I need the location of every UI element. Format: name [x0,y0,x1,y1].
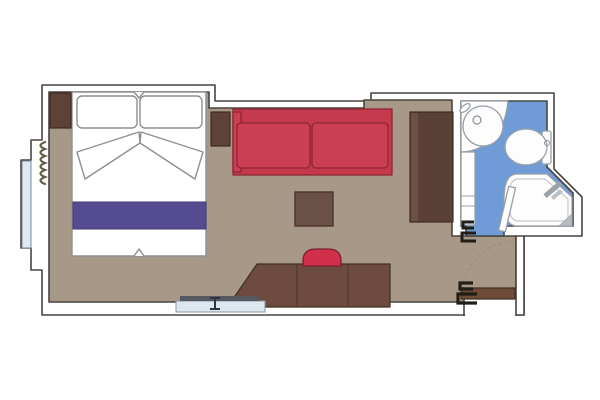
nightstand-left [50,93,71,128]
shelf-unit [461,152,475,225]
stool [303,249,341,266]
coffee-table [295,192,333,226]
nightstand-right [211,112,230,146]
pillow-right [140,96,202,128]
sofa [233,109,392,175]
toilet [505,129,551,165]
balcony-window [22,161,31,248]
pillow-left [77,96,137,128]
bed-runner [73,202,206,229]
double-bed [72,92,206,256]
sofa-cushion-left [237,123,310,168]
cabin-floor-plan [0,0,600,400]
entry-corner-wall [516,236,524,315]
toilet-bowl [505,129,547,165]
wardrobe-edge [411,113,418,221]
wardrobe [410,112,453,222]
entry-doorway-opening [465,303,515,317]
luggage-bench [176,296,265,312]
floor-plan-image [0,0,600,400]
washbasin [463,106,503,146]
bench-base [176,301,265,312]
sofa-cushion-right [312,123,388,168]
